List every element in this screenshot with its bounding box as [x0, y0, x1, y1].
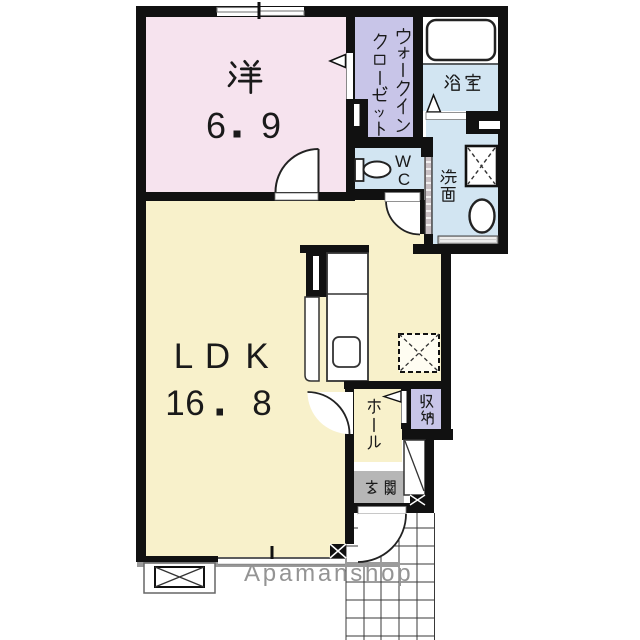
svg-text:C: C	[398, 170, 410, 189]
svg-text:L: L	[174, 337, 193, 376]
svg-text:9: 9	[261, 105, 281, 146]
svg-text:D: D	[205, 337, 230, 376]
svg-text:8: 8	[252, 384, 271, 423]
svg-text:6: 6	[206, 105, 226, 146]
svg-text:K: K	[245, 337, 268, 376]
svg-text:Apamanshop: Apamanshop	[244, 560, 413, 587]
svg-text:1: 1	[165, 384, 184, 423]
svg-text:W: W	[395, 152, 411, 171]
svg-text:6: 6	[185, 384, 204, 423]
